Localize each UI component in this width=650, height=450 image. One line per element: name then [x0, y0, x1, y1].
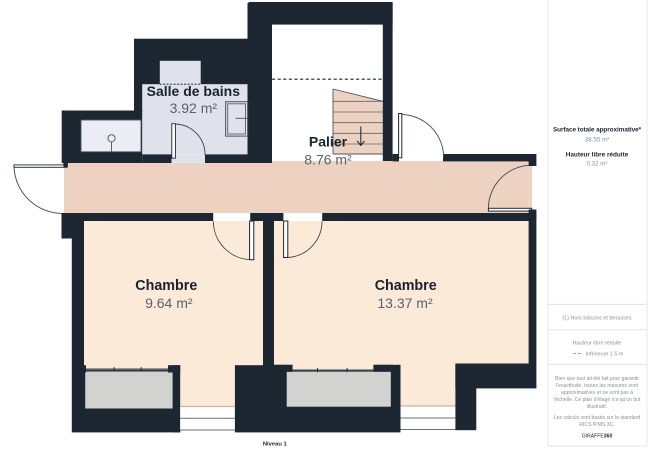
svg-text:Bien que tout ait été fait pou: Bien que tout ait été fait pour garantir [555, 376, 639, 382]
svg-text:Surface totale approximative*: Surface totale approximative* [553, 127, 642, 134]
svg-text:38.55 m²: 38.55 m² [585, 137, 609, 144]
svg-text:Hauteur libre réduite: Hauteur libre réduite [566, 151, 629, 158]
svg-text:GIRAFFE360: GIRAFFE360 [582, 434, 613, 440]
svg-text:0.32 m²: 0.32 m² [587, 161, 608, 168]
svg-text:Hauteur libre réduite: Hauteur libre réduite [573, 340, 622, 346]
svg-text:(1) Hors balcons et terrasses: (1) Hors balcons et terrasses [562, 316, 632, 322]
svg-text:RICS IPMS 3C.: RICS IPMS 3C. [579, 422, 614, 428]
svg-text:Salle de bains: Salle de bains [147, 83, 241, 99]
svg-text:Les calculs sont basés sur le: Les calculs sont basés sur le standard [554, 415, 641, 421]
svg-text:13.37 m²: 13.37 m² [377, 295, 433, 311]
svg-text:approximatives et ne sont pas: approximatives et ne sont pas à [561, 390, 633, 396]
svg-text:l'échelle. Ce plan d'étage n'a: l'échelle. Ce plan d'étage n'a qu'un but [554, 397, 641, 403]
svg-text:9.64 m²: 9.64 m² [145, 295, 193, 311]
svg-text:Chambre: Chambre [135, 278, 197, 294]
svg-text:Niveau 1: Niveau 1 [263, 442, 288, 448]
svg-text:Palier: Palier [309, 134, 348, 150]
svg-text:illustratif.: illustratif. [587, 404, 607, 410]
svg-text:Chambre: Chambre [375, 278, 437, 294]
svg-text:l'exactitude, toutes les mesur: l'exactitude, toutes les mesures sont [556, 383, 639, 389]
svg-text:8.76 m²: 8.76 m² [304, 151, 352, 167]
svg-text:Inférieure 1.5 m: Inférieure 1.5 m [586, 352, 624, 358]
svg-text:3.92 m²: 3.92 m² [170, 100, 218, 116]
